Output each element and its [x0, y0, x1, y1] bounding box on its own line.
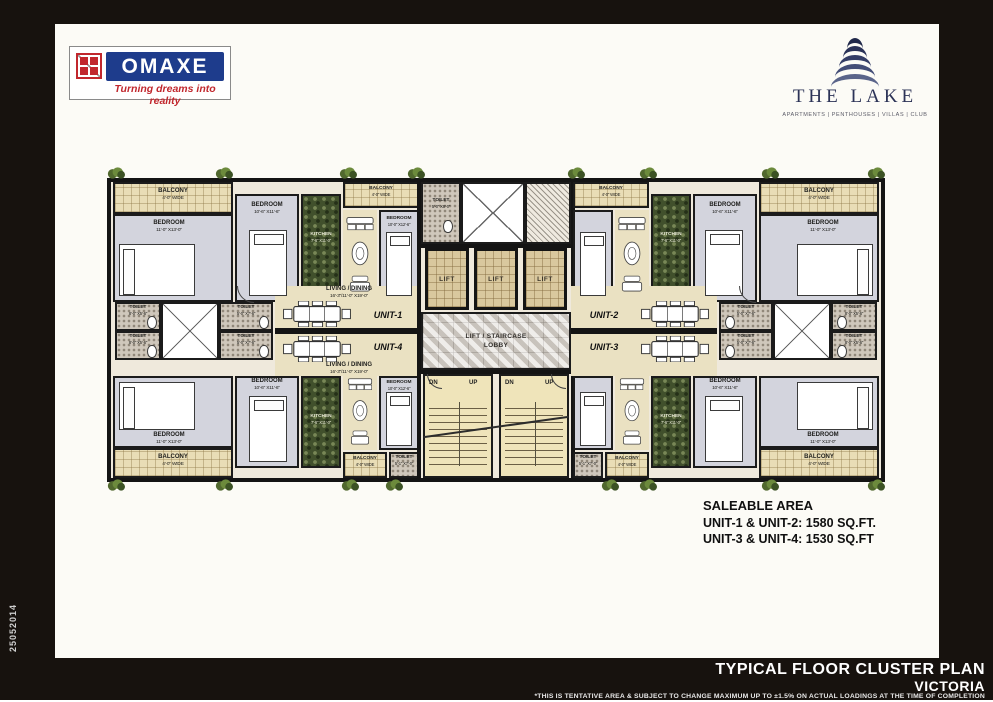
living-dining-label: LIVING / DINING16'-3"/11'-0" X19'-0": [279, 286, 419, 300]
omaxe-logo: OMAXE Turning dreams into reality: [69, 46, 231, 100]
page: { "side_code": "25052014", "branding": {…: [0, 0, 993, 702]
plant-icon: [407, 167, 425, 179]
plant-icon: [761, 167, 779, 179]
plant-icon: [385, 479, 403, 491]
dining-table-icon: [281, 336, 353, 362]
stair-dn-label: DN: [429, 380, 438, 386]
kitchen-label: KITCHEN7'-6" X11'-0": [301, 414, 341, 426]
balcony-label: BALCONY4'-0" WIDE: [343, 186, 419, 198]
unit3-label: UNIT-3: [573, 342, 635, 352]
lobby-label: LIFT / STAIRCASELOBBY: [421, 312, 571, 370]
lake-categories: APARTMENTS | PENTHOUSES | VILLAS | CLUB: [770, 112, 940, 118]
bedroom-label: BEDROOM10'-6" X11'-6": [237, 378, 297, 392]
dining-table-icon: [639, 301, 711, 327]
toilet-label: TOILET5'-0" X7'-6": [719, 305, 773, 317]
plant-icon: [639, 167, 657, 179]
lake-wordmark: THE LAKE: [770, 86, 940, 108]
bed-icon: [797, 382, 873, 430]
plant-icon: [107, 479, 125, 491]
bed-icon: [705, 396, 743, 462]
toilet-label: TOILET8'-0" X5'-6": [115, 305, 161, 317]
saleable-unit12: UNIT-1 & UNIT-2: 1580 SQ.FT.: [703, 515, 943, 531]
bed-icon: [119, 244, 195, 296]
bedroom-label: BEDROOM11'-0" X13'-0": [773, 220, 873, 234]
lift-1: LIFT: [425, 248, 469, 310]
dining-table-icon: [639, 336, 711, 362]
bed-icon: [705, 230, 743, 296]
unit2-label: UNIT-2: [573, 310, 635, 320]
bedroom-label: BEDROOM11'-0" X13'-0": [773, 432, 873, 446]
bedroom-label: BEDROOM11'-0" X13'-0": [119, 432, 219, 446]
balcony-label: BALCONY4'-0" WIDE: [605, 456, 649, 468]
bedroom-label: BEDROOM11'-0" X13'-0": [119, 220, 219, 234]
footer-disclaimer: *THIS IS TENTATIVE AREA & SUBJECT TO CHA…: [534, 693, 985, 700]
omaxe-wordmark: OMAXE: [106, 52, 224, 81]
balcony-label: BALCONY4'-0" WIDE: [759, 188, 879, 202]
bed-icon: [386, 392, 412, 446]
bed-icon: [580, 392, 606, 446]
unit1-label: UNIT-1: [357, 310, 419, 320]
sofa-set-icon: [618, 212, 646, 300]
toilet-label: TOILET8'-0" X5'-6": [831, 305, 877, 317]
balcony-label: BALCONY4'-0" WIDE: [343, 456, 387, 468]
kitchen-label: KITCHEN7'-6" X11'-0": [651, 232, 691, 244]
stair-up-label: UP: [545, 380, 553, 386]
toilet-label: TOILET5'-1" X7'-0": [389, 455, 419, 467]
omaxe-grid-icon: [76, 53, 102, 79]
drawing-sheet: OMAXE Turning dreams into reality THE LA…: [55, 24, 939, 658]
wc-icon: [259, 345, 269, 358]
bed-icon: [249, 396, 287, 462]
wc-icon: [443, 220, 453, 233]
lake-tower-icon: [770, 38, 940, 84]
wc-icon: [725, 345, 735, 358]
plant-icon: [215, 167, 233, 179]
plant-icon: [761, 479, 779, 491]
living-dining-label: LIVING / DINING16'-3"/11'-0" X19'-0": [279, 362, 419, 376]
kitchen-label: KITCHEN7'-6" X11'-0": [301, 232, 341, 244]
toilet-label: TOILET5'-0" X8'-0": [421, 198, 461, 210]
saleable-unit34: UNIT-3 & UNIT-4: 1530 SQ.FT: [703, 531, 943, 547]
living-3-strip: [571, 362, 717, 376]
shaft-void: [161, 302, 219, 360]
bed-icon: [119, 382, 195, 430]
balcony-label: BALCONY4'-0" WIDE: [113, 454, 233, 468]
bedroom-label: BEDROOM10'-6" X11'-6": [695, 202, 755, 216]
wc-icon: [259, 316, 269, 329]
plant-icon: [567, 167, 585, 179]
staircase-1: [423, 374, 493, 478]
wc-icon: [725, 316, 735, 329]
bedroom-label: BEDROOM10'-0" X12'-6": [371, 380, 427, 392]
wc-icon: [147, 345, 157, 358]
plant-icon: [867, 167, 885, 179]
footer-plan-title: TYPICAL FLOOR CLUSTER PLAN: [715, 661, 985, 679]
stair-dn-label: DN: [505, 380, 514, 386]
plant-icon: [601, 479, 619, 491]
toilet-label: TOILET5'-0" X7'-6": [719, 334, 773, 346]
sofa-set-icon: [346, 378, 374, 448]
toilet-label: TOILET5'-1" X7'-0": [573, 455, 603, 467]
plant-icon: [867, 479, 885, 491]
lift-3: LIFT: [523, 248, 567, 310]
toilet-label: TOILET8'-0" X5'-6": [115, 334, 161, 346]
plant-icon: [639, 479, 657, 491]
plant-icon: [339, 167, 357, 179]
plant-icon: [107, 167, 125, 179]
balcony-label: BALCONY4'-0" WIDE: [759, 454, 879, 468]
balcony-label: BALCONY4'-0" WIDE: [573, 186, 649, 198]
dining-table-icon: [281, 301, 353, 327]
toilet-top-center: [421, 182, 461, 244]
bedroom-label: BEDROOM10'-0" X12'-6": [371, 216, 427, 228]
omaxe-tagline: Turning dreams into reality: [104, 83, 226, 107]
kitchen-label: KITCHEN7'-6" X11'-0": [651, 414, 691, 426]
stair-spine: [535, 402, 536, 466]
saleable-title: SALEABLE AREA: [703, 498, 943, 515]
shaft-void: [773, 302, 831, 360]
plant-icon: [215, 479, 233, 491]
sofa-set-icon: [618, 378, 646, 448]
service-ledge: [525, 182, 571, 244]
bedroom-label: BEDROOM10'-6" X11'-6": [695, 378, 755, 392]
stair-spine: [459, 402, 460, 466]
bed-icon: [580, 232, 606, 296]
toilet-label: TOILET5'-0" X7'-6": [219, 305, 273, 317]
balcony-label: BALCONY4'-0" WIDE: [113, 188, 233, 202]
floor-plan: BALCONY4'-0" WIDE BEDROOM11'-0" X13'-0" …: [103, 170, 889, 490]
stair-up-label: UP: [469, 380, 477, 386]
bed-icon: [797, 244, 873, 296]
toilet-label: TOILET8'-0" X5'-6": [831, 334, 877, 346]
wc-icon: [837, 316, 847, 329]
wc-icon: [837, 345, 847, 358]
wc-icon: [147, 316, 157, 329]
unit4-label: UNIT-4: [357, 342, 419, 352]
the-lake-logo: THE LAKE APARTMENTS | PENTHOUSES | VILLA…: [770, 38, 940, 118]
side-date-code: 25052014: [8, 604, 18, 652]
saleable-area-block: SALEABLE AREA UNIT-1 & UNIT-2: 1580 SQ.F…: [703, 498, 943, 547]
plant-icon: [341, 479, 359, 491]
bedroom-label: BEDROOM10'-6" X11'-6": [237, 202, 297, 216]
stair-treads: [505, 402, 563, 466]
shaft-void-top: [461, 182, 525, 244]
lift-2: LIFT: [474, 248, 518, 310]
footer-project-name: VICTORIA: [914, 678, 985, 694]
toilet-label: TOILET5'-0" X7'-6": [219, 334, 273, 346]
